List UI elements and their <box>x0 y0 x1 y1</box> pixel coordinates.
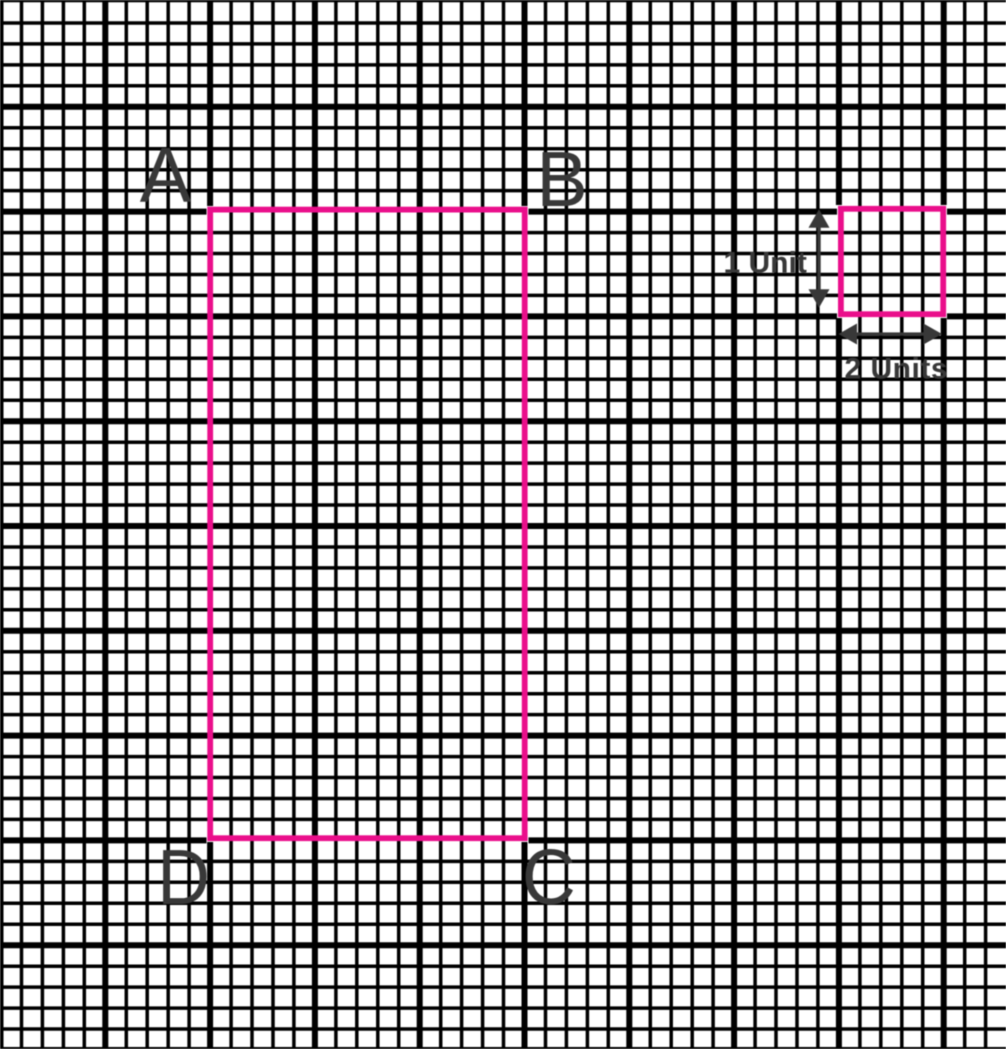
svg-text:2 Units: 2 Units <box>845 353 949 386</box>
svg-text:C: C <box>522 834 576 921</box>
svg-text:B: B <box>536 137 588 223</box>
svg-text:D: D <box>157 834 210 922</box>
svg-text:A: A <box>140 132 192 218</box>
svg-text:1 Unit: 1 Unit <box>724 247 807 280</box>
